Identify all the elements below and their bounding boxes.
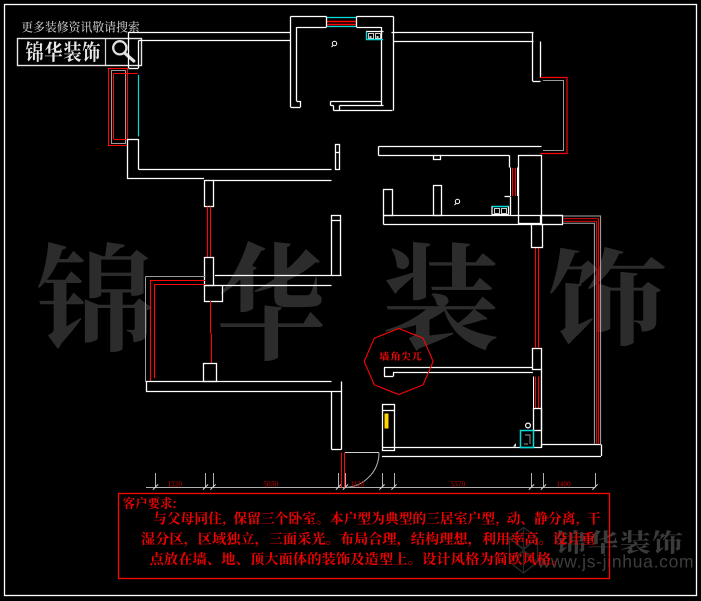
- svg-text:www.js-jinhua.com: www.js-jinhua.com: [537, 552, 695, 572]
